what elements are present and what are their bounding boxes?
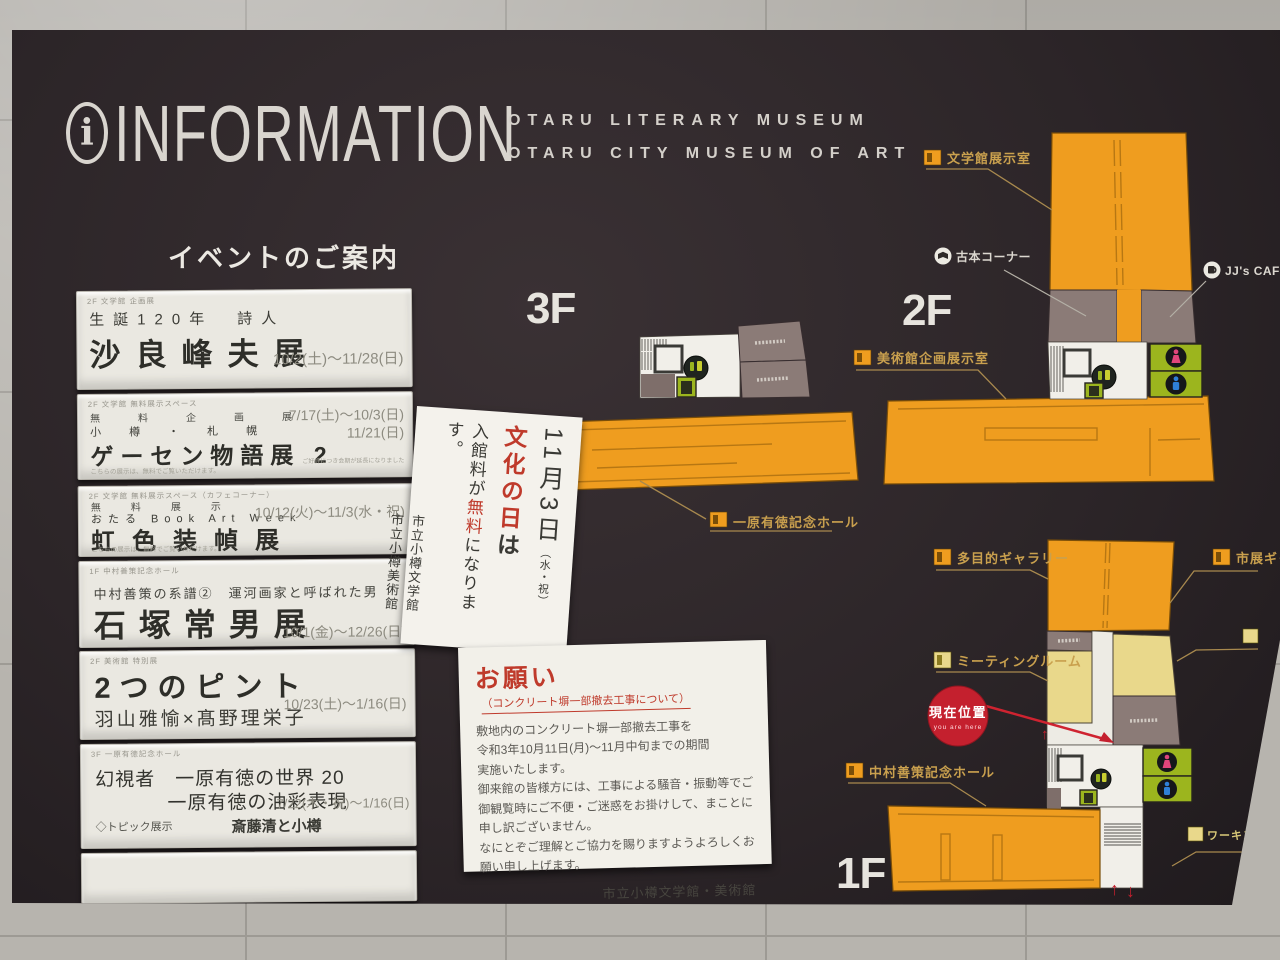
nakamura-hall <box>888 806 1100 891</box>
sign-figure <box>1096 774 1100 782</box>
event-note: ご好評につき会期が延長になりました <box>302 455 404 465</box>
room-2f-left <box>1048 290 1117 342</box>
landing-1f <box>1047 788 1061 812</box>
label-jjs-cafe: JJ's CAFE <box>1225 264 1280 278</box>
event-note: こちらの展示は、無料でご覧いただけます。 <box>90 465 219 476</box>
event-venue: 2F 文学館 企画展 <box>87 295 155 307</box>
event-subtitle: 羽山雅愉×髙野理栄子 <box>95 703 307 732</box>
room-icon-detail <box>927 153 932 162</box>
notice-date-text: 11月3日 <box>531 427 567 549</box>
construction-notice-subtitle: （コンクリート塀一部撤去工事について） <box>481 690 690 714</box>
sign-figure <box>697 361 702 371</box>
event-title: 2つのピント <box>94 663 309 707</box>
leader-line <box>936 570 1048 579</box>
notice-title-red: 文化の日 <box>494 424 527 534</box>
cafe-icon-cup <box>1208 266 1215 274</box>
room-3f-a <box>738 321 806 362</box>
event-card-genshisha: 3F 一原有徳記念ホール 幻視者 一原有徳の世界 20 一原有徳の油彩表現 7/… <box>80 741 417 849</box>
floor-plan-1f: 1F <box>836 540 1280 901</box>
male-icon <box>1165 782 1170 787</box>
floor-label-1f: 1F <box>836 849 885 898</box>
elevator-icon <box>655 346 682 372</box>
room-icon <box>846 763 863 778</box>
notice-body: 入館料が無料になります。 <box>427 420 492 637</box>
room-label-marks <box>755 341 785 343</box>
leader-line <box>1177 649 1258 661</box>
floor-label-2f: 2F <box>902 286 951 335</box>
event-venue: 3F 一原有徳記念ホール <box>91 748 181 760</box>
entrance-arrow-up: ↑ <box>1110 879 1119 899</box>
event-subtitle: 生誕120年 詩人 <box>89 307 285 330</box>
event-card-ishizuka: 1F 中村善策記念ホール 中村善策の系譜② 運河画家と呼ばれた男 石塚常男展 1… <box>78 558 415 648</box>
room-icon <box>1243 629 1258 643</box>
notice-date-note: （水・祝） <box>535 547 551 608</box>
sign-figure <box>1105 370 1110 380</box>
room-icon-detail <box>857 353 862 362</box>
marker-text-en: you are here <box>934 724 983 731</box>
floor-plan-2f: 2F 文学 <box>854 133 1280 484</box>
elevator-door-inner <box>1084 793 1093 803</box>
culture-day-notice: 11月3日（水・祝） 文化の日は 入館料が無料になります。 市立小樽文学館 市立… <box>400 406 582 655</box>
room-2f-right <box>1141 290 1196 343</box>
notice-title-black: は <box>493 532 521 561</box>
construction-notice-header: お願い （コンクリート塀一部撤去工事について） <box>474 652 751 716</box>
label-literary-gallery: 文学館展示室 <box>947 151 1031 166</box>
elevator-door-inner <box>681 381 692 394</box>
male-icon <box>1164 787 1170 795</box>
room-1f-right <box>1113 634 1176 696</box>
notice-body-pre: 入館料が <box>465 422 489 499</box>
leader-line <box>848 783 986 806</box>
leader-line <box>936 672 1048 681</box>
room-icon <box>1188 827 1203 841</box>
leader-line <box>1172 852 1242 866</box>
room-icon <box>710 512 727 527</box>
room-icon-detail <box>1216 552 1221 562</box>
notice-body-red: 無料 <box>462 498 484 537</box>
male-icon <box>1173 382 1179 390</box>
hall-3f <box>562 412 858 490</box>
entrance-arrow-up-small: ↑ <box>1041 726 1049 743</box>
room-icon <box>934 652 951 668</box>
information-board: i INFORMATION OTARU LITERARY MUSEUM OTAR… <box>0 0 1280 960</box>
label-city-gallery: 市展ギャラリー <box>1236 551 1280 566</box>
female-icon <box>1165 755 1170 760</box>
label-ichihara-hall: 一原有徳記念ホール <box>733 515 859 530</box>
room-icon <box>924 150 941 165</box>
floor-label-3f: 3F <box>526 284 575 333</box>
entrance-corridor-1f <box>1100 807 1143 888</box>
corridor-2f <box>1117 290 1141 343</box>
event-topic-value: 斎藤清と小樽 <box>232 815 322 837</box>
label-multipurpose-gallery: 多目的ギャラリー <box>957 551 1069 566</box>
event-dates: 7/22(木・祝)〜1/16(日) <box>276 792 409 812</box>
room-icon <box>854 350 871 365</box>
landing-3f <box>641 374 675 397</box>
label-meeting-room: ミーティングルーム <box>957 654 1082 669</box>
sign-figure <box>1098 371 1102 380</box>
room-icon <box>934 549 951 565</box>
elevator-icon <box>1064 350 1090 376</box>
sign-figure <box>1102 773 1107 782</box>
event-card-game-center: 2F 文学館 無料展示スペース 無料企画展 小樽・札幌 ゲーセン物語展 2 7/… <box>77 391 414 480</box>
leader-line <box>926 169 1052 210</box>
room-icon-detail <box>937 552 942 562</box>
male-icon <box>1174 376 1179 381</box>
event-card-sara-mineo: 2F 文学館 企画展 生誕120年 詩人 沙良峰夫展 10/2(土)〜11/28… <box>76 288 413 390</box>
room-icon-detail <box>713 515 718 524</box>
room-icon-detail <box>849 766 854 775</box>
office-room-1f <box>1113 696 1180 745</box>
event-dates: 10/2(土)〜11/28(日) <box>273 347 404 369</box>
marker-text-jp: 現在位置 <box>929 705 987 720</box>
elevator-door-inner <box>1089 386 1099 396</box>
label-art-gallery: 美術館企画展示室 <box>877 351 989 366</box>
label-used-books: 古本コーナー <box>956 249 1031 264</box>
leader-line <box>1170 571 1258 603</box>
event-note: こちらの展示は、無料でご覧いただけます。 <box>91 543 220 554</box>
elevator-icon <box>1058 756 1082 780</box>
event-card-two-pints: 2F 美術館 特別展 2つのピント 羽山雅愉×髙野理栄子 10/23(土)〜1/… <box>79 648 416 740</box>
event-topic-label: ◇トピック展示 <box>96 818 173 835</box>
construction-notice-title: お願い <box>474 657 559 695</box>
label-nakamura-hall: 中村善策記念ホール <box>869 765 995 780</box>
event-venue: 1F 中村善策記念ホール <box>89 565 179 577</box>
blank-card <box>81 850 417 904</box>
event-dates: 10/12(火)〜11/3(水・祝) <box>255 501 405 522</box>
facility-sign-1f <box>1091 769 1111 789</box>
female-icon <box>1174 349 1179 354</box>
event-dates: 10/23(土)〜1/16(日) <box>284 693 407 714</box>
event-card-rainbow-binding: 2F 文学館 無料展示スペース（カフェコーナー） 無料展示 おたる Book A… <box>78 483 415 557</box>
room-icon <box>1213 549 1230 565</box>
sign-figure <box>690 362 694 371</box>
construction-notice: お願い （コンクリート塀一部撤去工事について） 敷地内のコンクリート塀一部撤去工… <box>458 640 772 872</box>
leader-line <box>856 370 1006 399</box>
room-icon-detail <box>937 655 942 665</box>
entrance-arrow-down: ↓ <box>1126 881 1135 901</box>
